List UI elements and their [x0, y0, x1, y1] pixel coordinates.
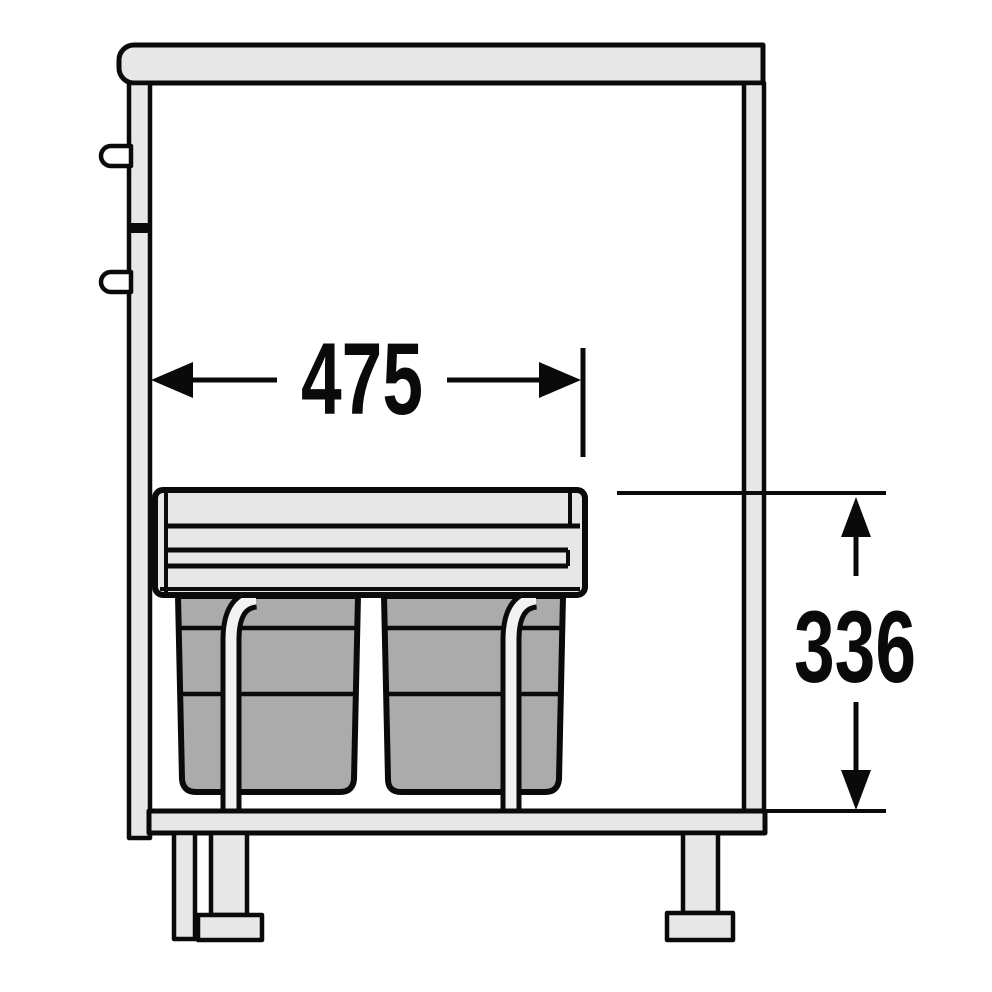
height-arrowhead-down	[841, 770, 871, 810]
countertop	[119, 45, 763, 83]
right-foot	[667, 913, 733, 940]
lower-drawer-handle	[101, 272, 131, 292]
height-dimension: 336	[617, 493, 916, 811]
pullout-frame-body	[155, 490, 585, 595]
front-panel-seam	[127, 223, 152, 233]
height-dimension-label: 336	[794, 590, 916, 704]
cabinet-dimension-diagram: 475	[0, 0, 992, 992]
width-dimension: 475	[151, 322, 583, 457]
right-side-panel	[744, 83, 764, 833]
left-foot	[198, 915, 262, 940]
width-dimension-label: 475	[301, 322, 423, 436]
cabinet-legs	[174, 833, 733, 940]
cabinet-bottom-panel	[149, 811, 765, 833]
width-arrowhead-right	[539, 362, 581, 398]
left-front-leg	[174, 833, 195, 939]
upper-drawer-handle	[101, 146, 131, 166]
left-front-panel	[129, 83, 150, 838]
left-leg	[211, 833, 247, 915]
diagram-svg: 475	[0, 0, 992, 992]
width-arrowhead-left	[151, 362, 193, 398]
right-leg	[683, 833, 718, 913]
pullout-frame	[155, 490, 585, 595]
height-arrowhead-up	[841, 497, 871, 537]
